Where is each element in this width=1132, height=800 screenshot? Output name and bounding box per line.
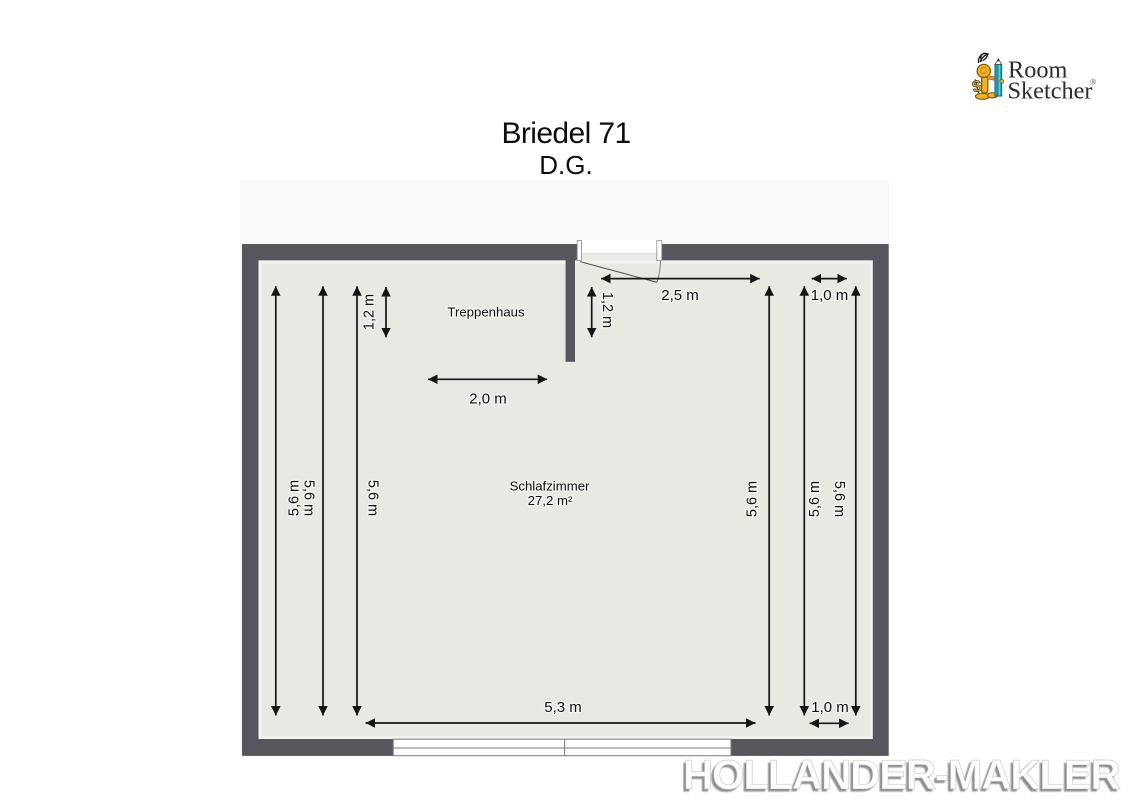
svg-text:2,0 m: 2,0 m	[469, 391, 507, 408]
svg-text:5,6 m: 5,6 m	[807, 481, 823, 517]
svg-text:1,2 m: 1,2 m	[362, 294, 378, 330]
svg-text:Schlafzimmer: Schlafzimmer	[510, 479, 590, 494]
svg-text:1,0 m: 1,0 m	[811, 699, 849, 716]
svg-text:5,6 m: 5,6 m	[287, 480, 303, 516]
svg-text:5,3 m: 5,3 m	[544, 699, 582, 716]
svg-text:Treppenhaus: Treppenhaus	[447, 305, 525, 320]
svg-text:27,2 m²: 27,2 m²	[528, 493, 573, 508]
svg-text:5,6 m: 5,6 m	[365, 480, 381, 516]
svg-text:2,5 m: 2,5 m	[661, 287, 699, 304]
svg-text:5,6 m: 5,6 m	[831, 481, 847, 517]
svg-text:1,0 m: 1,0 m	[811, 287, 849, 304]
svg-text:5,6 m: 5,6 m	[301, 480, 317, 516]
svg-text:5,6 m: 5,6 m	[745, 481, 761, 517]
svg-text:1,2 m: 1,2 m	[599, 292, 615, 328]
